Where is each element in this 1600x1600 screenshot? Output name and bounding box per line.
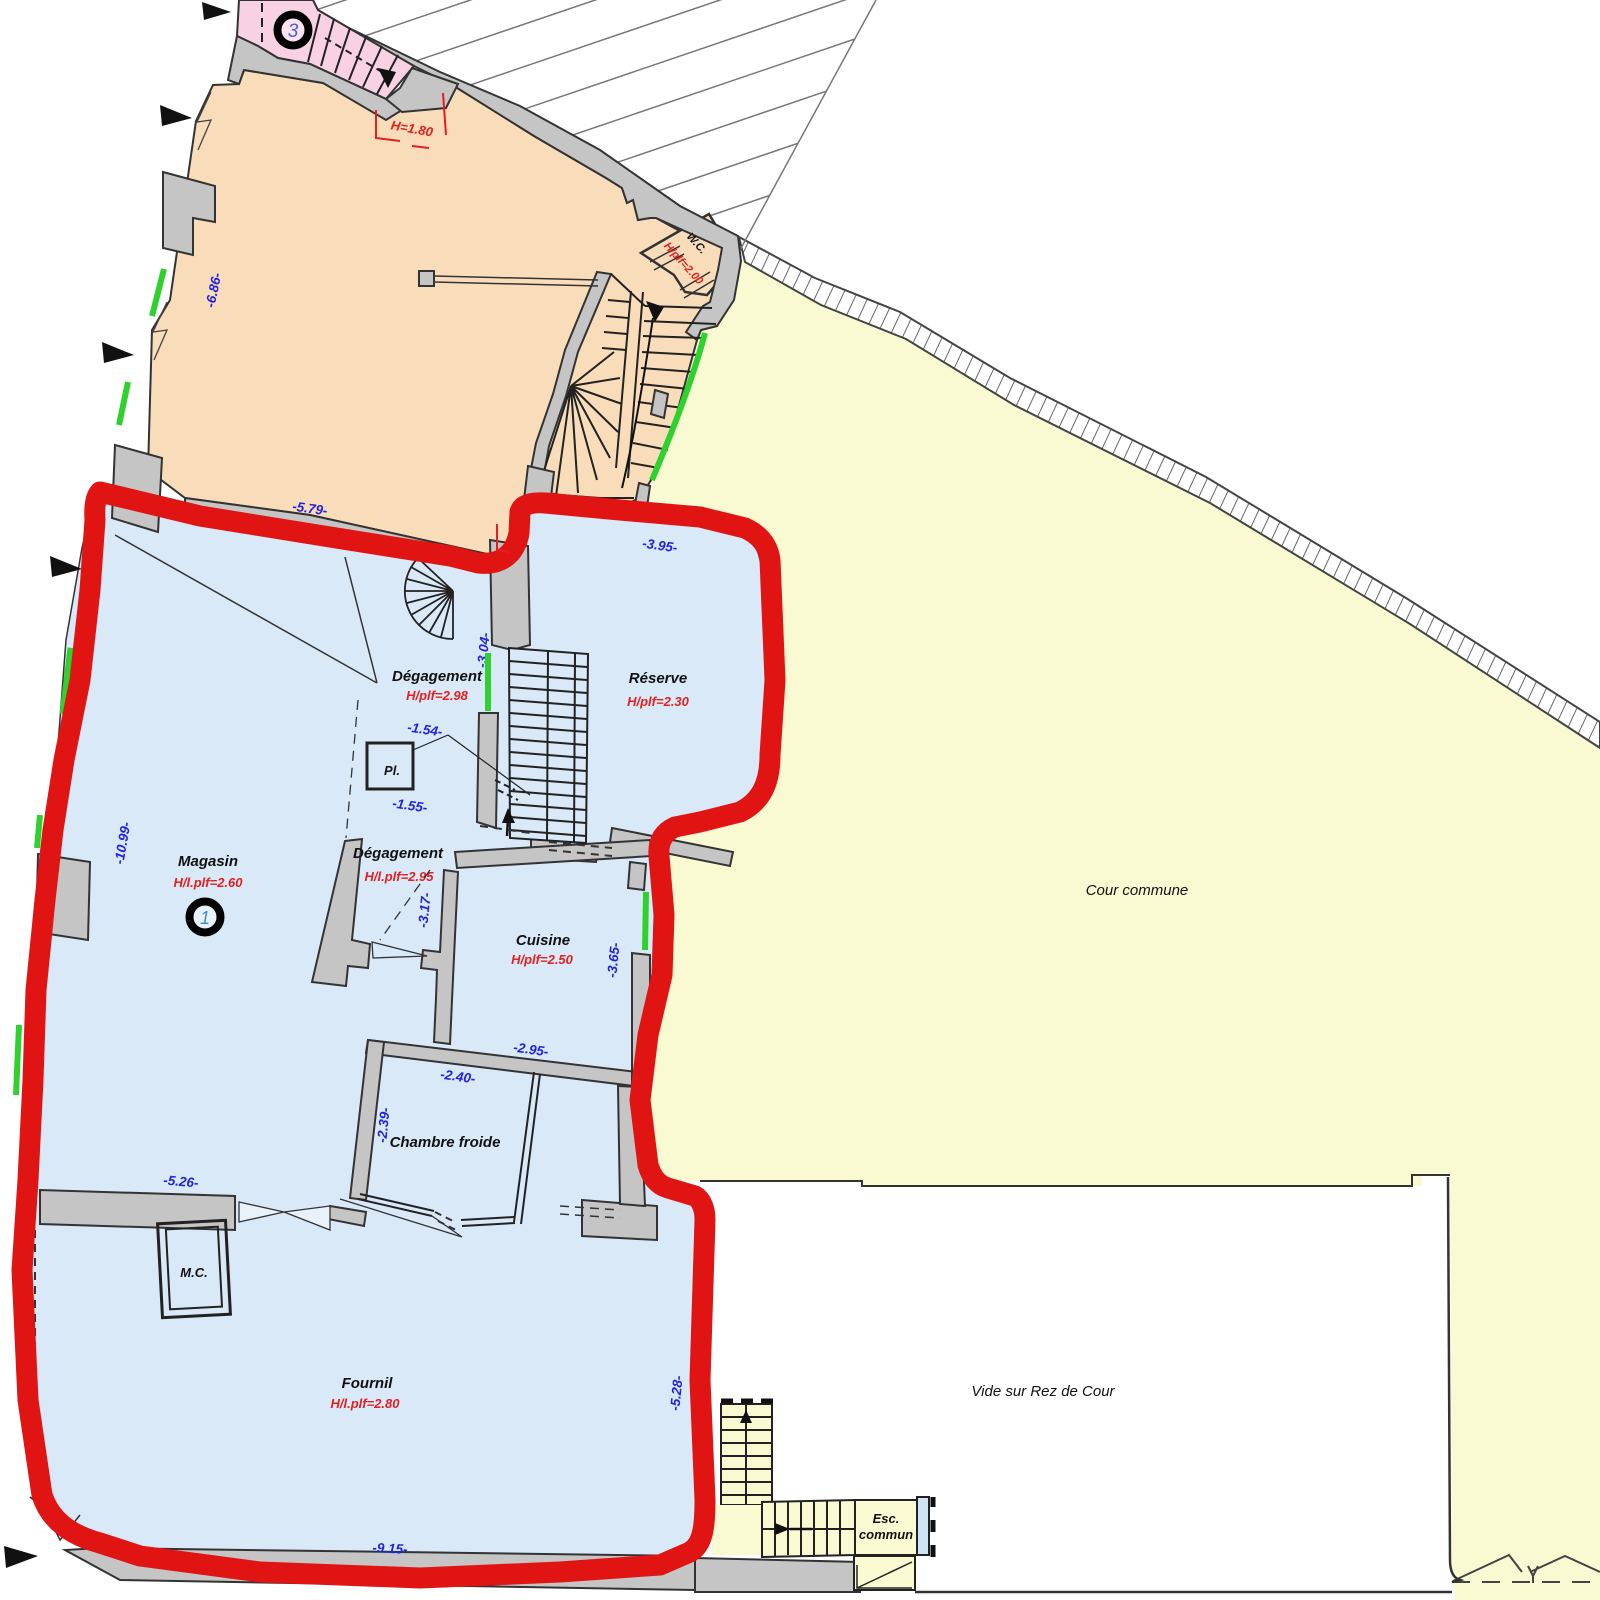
svg-text:-9.15-: -9.15- bbox=[372, 1540, 409, 1557]
svg-text:M.C.: M.C. bbox=[180, 1265, 207, 1280]
svg-text:H/l.plf=2.60: H/l.plf=2.60 bbox=[174, 875, 244, 890]
svg-text:H/plf=2.30: H/plf=2.30 bbox=[627, 694, 690, 709]
svg-text:Cour commune: Cour commune bbox=[1086, 882, 1189, 899]
svg-text:1: 1 bbox=[200, 908, 210, 928]
svg-text:H/l.plf=2.80: H/l.plf=2.80 bbox=[331, 1396, 401, 1411]
svg-text:Dégagement: Dégagement bbox=[353, 845, 444, 862]
svg-text:H/plf=2.98: H/plf=2.98 bbox=[406, 688, 469, 703]
svg-text:Réserve: Réserve bbox=[629, 670, 687, 687]
svg-text:Chambre froide: Chambre froide bbox=[390, 1134, 501, 1151]
svg-text:H/plf=2.50: H/plf=2.50 bbox=[511, 952, 574, 967]
svg-text:Pl.: Pl. bbox=[384, 763, 400, 778]
svg-text:3: 3 bbox=[288, 21, 299, 42]
svg-text:Fournil: Fournil bbox=[342, 1375, 394, 1392]
svg-text:H/l.plf=2.95: H/l.plf=2.95 bbox=[365, 869, 435, 884]
svg-text:Esc.: Esc. bbox=[873, 1511, 900, 1526]
svg-text:commun: commun bbox=[859, 1527, 913, 1542]
svg-text:Dégagement: Dégagement bbox=[392, 668, 483, 685]
svg-text:-5.26-: -5.26- bbox=[163, 1172, 200, 1190]
svg-text:Magasin: Magasin bbox=[178, 853, 238, 870]
svg-text:Vide sur Rez de Cour: Vide sur Rez de Cour bbox=[971, 1383, 1115, 1400]
svg-text:Cuisine: Cuisine bbox=[516, 932, 570, 949]
